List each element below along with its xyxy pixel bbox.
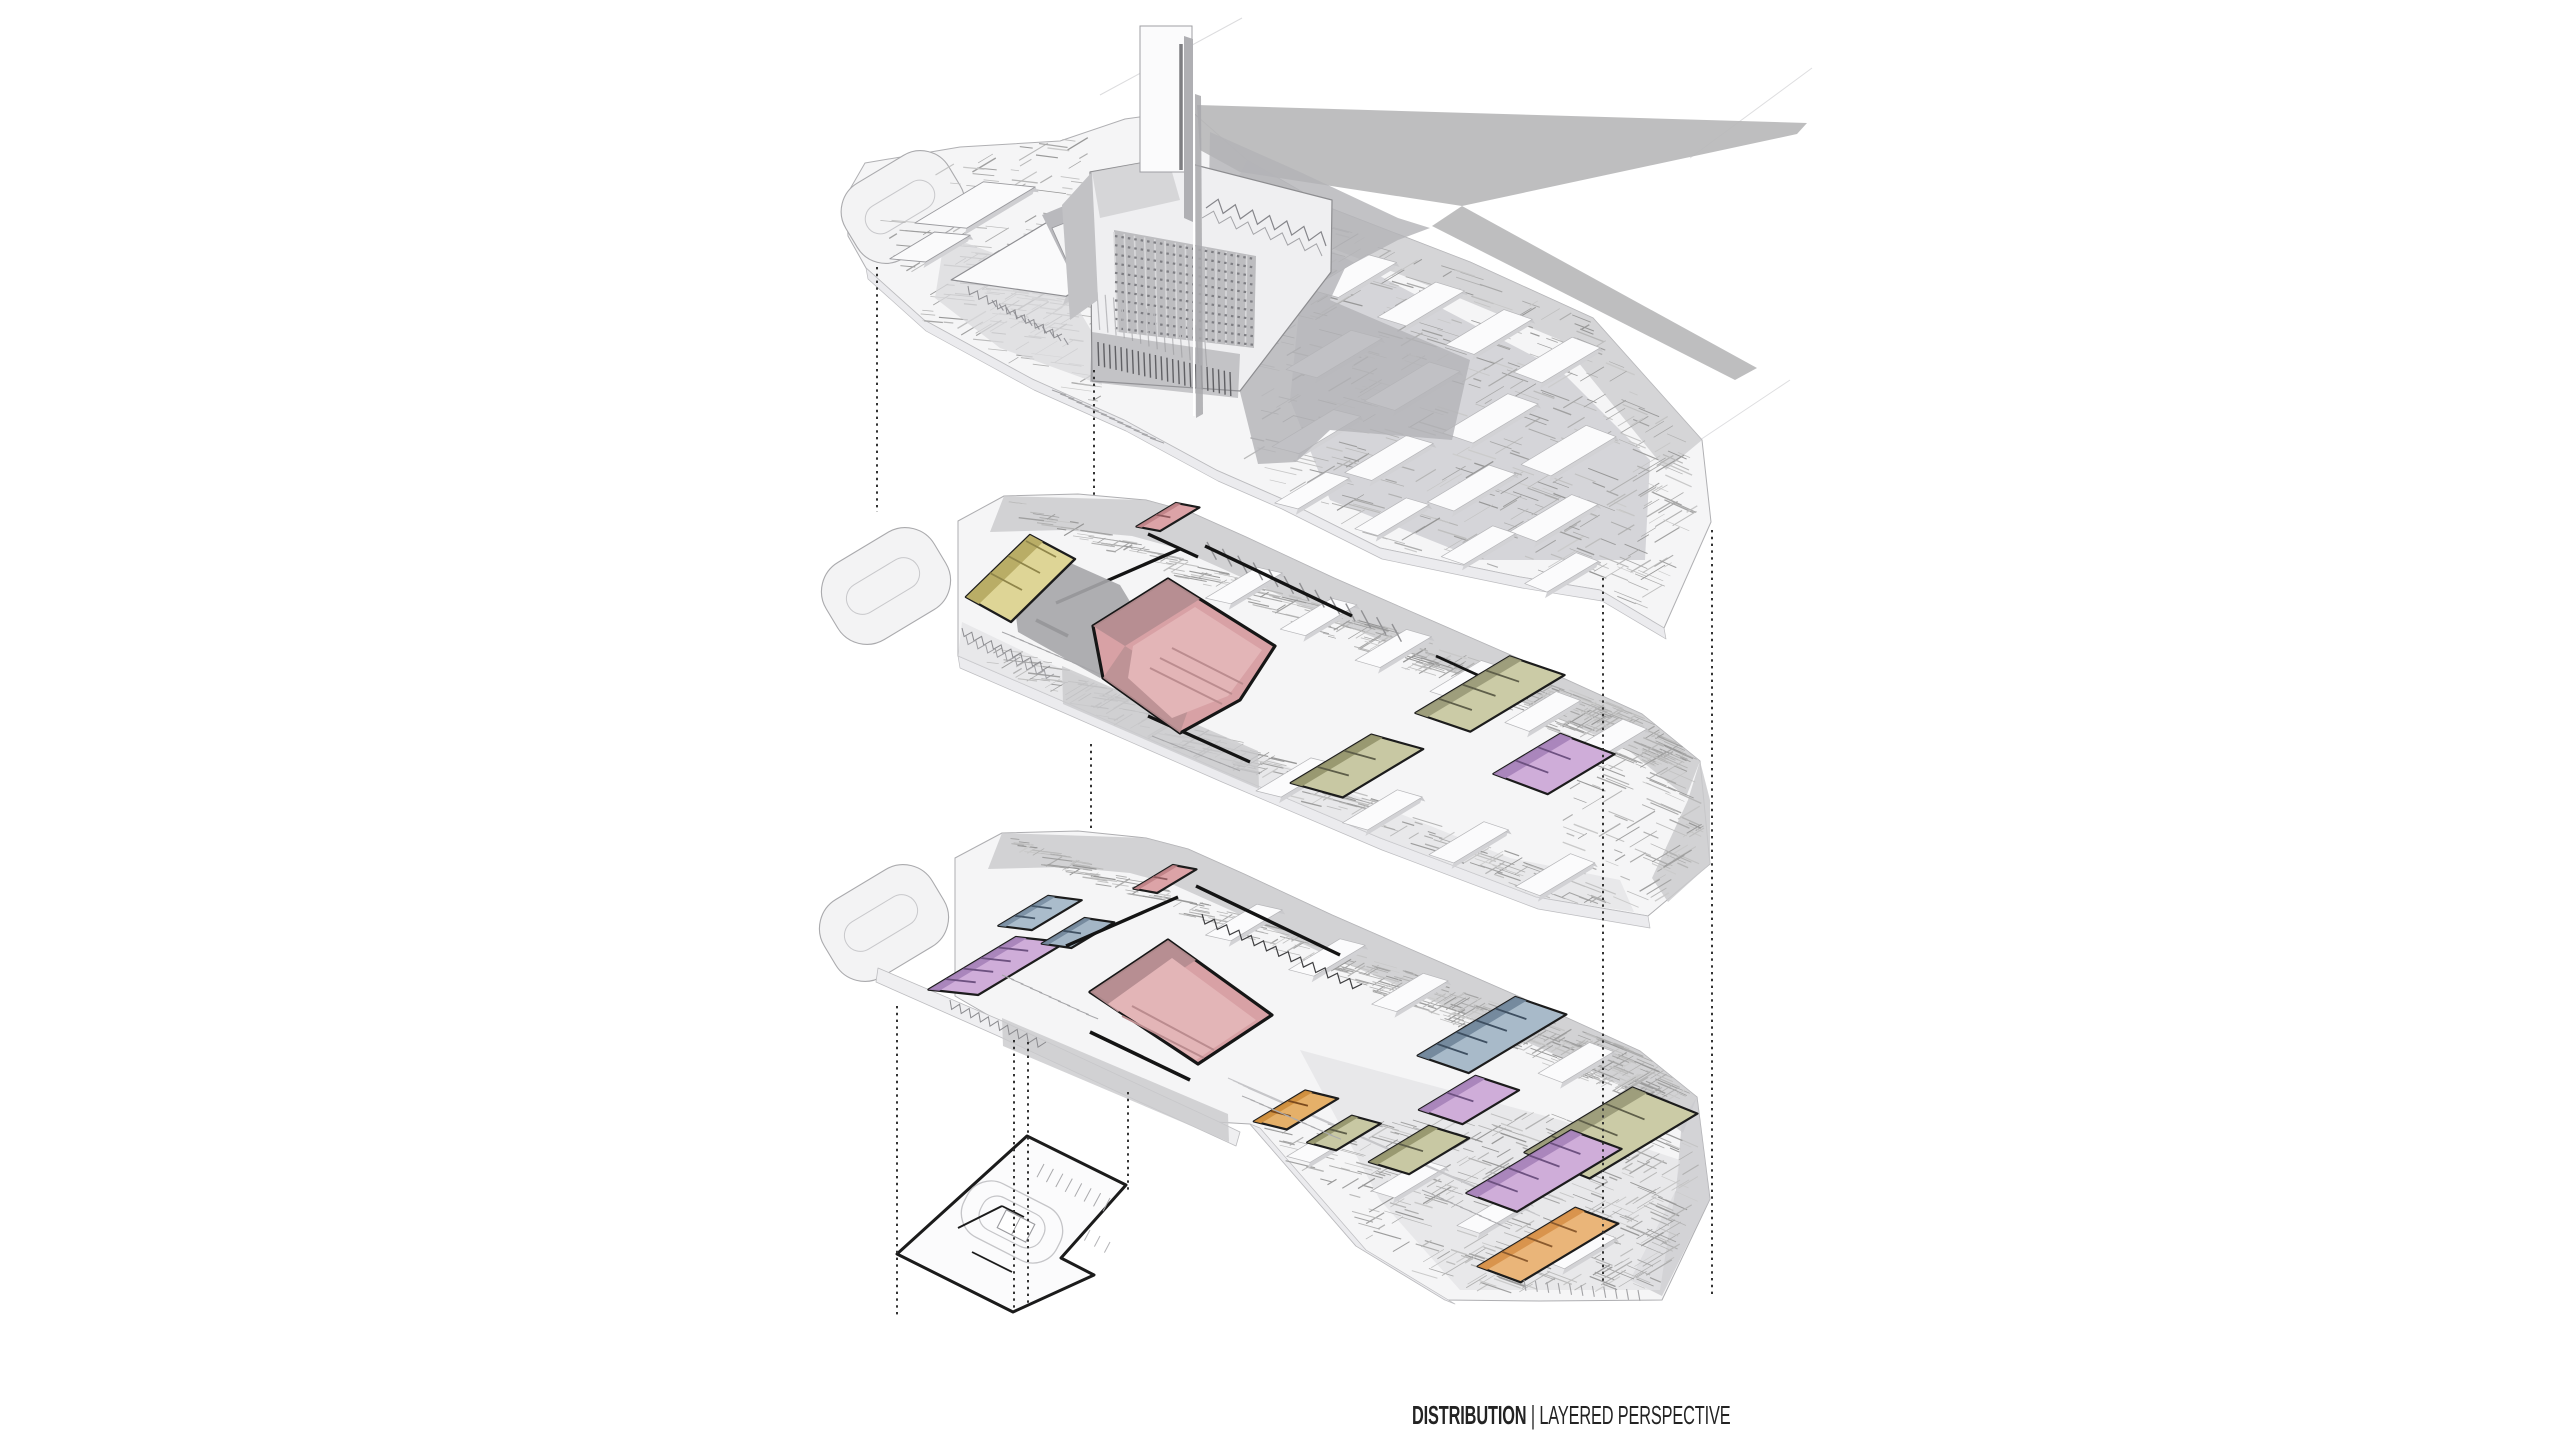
svg-text:DISTRIBUTION | LAYERED PERSPEC: DISTRIBUTION | LAYERED PERSPECTIVE	[1412, 1401, 1731, 1430]
